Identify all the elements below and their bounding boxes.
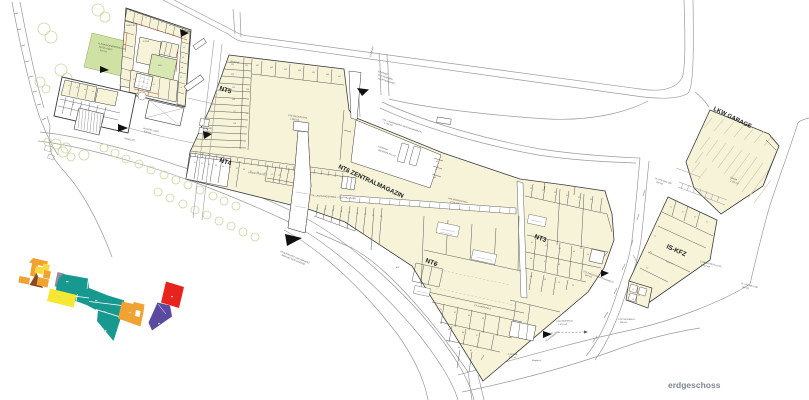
svg-text:r1: r1 <box>129 11 131 13</box>
svg-text:33: 33 <box>554 192 556 194</box>
svg-text:131: 131 <box>246 113 249 115</box>
svg-text:62: 62 <box>454 312 456 314</box>
svg-text:NT6: NT6 <box>435 264 438 266</box>
svg-text:001: 001 <box>256 65 259 67</box>
svg-text:965 m2: 965 m2 <box>620 322 628 324</box>
svg-text:004: 004 <box>298 70 301 72</box>
svg-text:127: 127 <box>233 111 236 113</box>
svg-text:61: 61 <box>440 309 442 311</box>
svg-text:t2: t2 <box>143 80 145 83</box>
svg-text:43: 43 <box>559 248 561 250</box>
svg-text:29: 29 <box>380 216 382 218</box>
svg-text:128: 128 <box>233 123 236 125</box>
svg-text:35: 35 <box>578 197 580 199</box>
svg-text:129: 129 <box>245 65 248 67</box>
svg-text:36: 36 <box>590 199 592 201</box>
svg-text:u3: u3 <box>84 89 86 91</box>
svg-text:32: 32 <box>542 190 544 192</box>
svg-text:64: 64 <box>482 318 484 320</box>
svg-text:125: 125 <box>232 87 235 89</box>
svg-text:28: 28 <box>372 215 374 217</box>
svg-text:65: 65 <box>448 329 450 331</box>
svg-text:06: 06 <box>229 167 231 169</box>
svg-text:44: 44 <box>573 251 575 253</box>
svg-text:42: 42 <box>545 245 547 247</box>
svg-text:12: 12 <box>271 174 273 176</box>
svg-text:t3: t3 <box>153 83 155 86</box>
svg-text:s2: s2 <box>183 47 185 49</box>
svg-text:03: 03 <box>208 164 210 166</box>
svg-text:1.474 m2: 1.474 m2 <box>558 324 568 326</box>
svg-text:34: 34 <box>566 195 568 197</box>
svg-text:r3: r3 <box>145 17 147 19</box>
svg-text:ST2 RBA: ST2 RBA <box>508 353 518 356</box>
svg-text:50: 50 <box>544 279 546 281</box>
svg-text:49: 49 <box>530 276 532 278</box>
svg-text:ST2 PROFIFELD: ST2 PROFIFELD <box>618 319 635 321</box>
svg-text:46: 46 <box>530 258 532 260</box>
svg-text:47: 47 <box>544 261 546 263</box>
svg-text:13: 13 <box>278 175 280 177</box>
svg-text:51: 51 <box>558 282 560 284</box>
svg-text:68: 68 <box>458 347 460 349</box>
svg-text:u7: u7 <box>80 106 82 108</box>
svg-text:s4: s4 <box>181 67 183 69</box>
svg-text:s6: s6 <box>180 87 182 89</box>
svg-text:LEGEND: LEGEND <box>203 128 212 130</box>
svg-text:25: 25 <box>348 212 350 214</box>
svg-text:007: 007 <box>338 76 341 78</box>
svg-text:67: 67 <box>476 335 478 337</box>
svg-text:21: 21 <box>316 208 318 210</box>
svg-text:005: 005 <box>312 72 315 74</box>
svg-text:003: 003 <box>284 69 287 71</box>
svg-text:905 m2: 905 m2 <box>509 357 517 359</box>
svg-text:FOYER: FOYER <box>143 41 150 43</box>
svg-text:u1: u1 <box>68 85 70 87</box>
svg-text:26: 26 <box>356 213 358 215</box>
svg-text:04: 04 <box>215 165 217 167</box>
svg-text:24: 24 <box>340 211 342 213</box>
svg-text:11: 11 <box>264 173 266 175</box>
svg-text:q2: q2 <box>435 169 437 171</box>
svg-text:u5: u5 <box>64 102 66 104</box>
svg-text:09: 09 <box>250 171 252 173</box>
svg-text:69: 69 <box>470 350 472 352</box>
svg-text:006: 006 <box>326 74 329 76</box>
svg-text:22: 22 <box>324 209 326 211</box>
svg-text:05: 05 <box>222 166 224 168</box>
svg-text:45: 45 <box>587 254 589 256</box>
svg-text:r5: r5 <box>161 22 163 24</box>
svg-text:r4: r4 <box>153 19 155 21</box>
svg-text:52: 52 <box>572 285 574 287</box>
svg-text:124: 124 <box>231 74 234 76</box>
svg-text:48: 48 <box>558 264 560 266</box>
svg-text:s1: s1 <box>184 37 186 39</box>
svg-text:Flugdach: Flugdach <box>532 360 542 362</box>
svg-text:66: 66 <box>462 332 464 334</box>
svg-text:01: 01 <box>194 162 196 164</box>
svg-text:41: 41 <box>531 242 533 244</box>
svg-text:erdgeschoss: erdgeschoss <box>668 380 721 390</box>
svg-text:q1: q1 <box>436 161 438 163</box>
svg-text:q3: q3 <box>434 177 436 179</box>
svg-text:r6: r6 <box>169 25 171 27</box>
svg-text:s5: s5 <box>180 77 182 79</box>
svg-text:u4: u4 <box>92 91 94 93</box>
svg-text:WERKSTATT: WERKSTATT <box>126 24 138 27</box>
svg-text:08: 08 <box>243 169 245 171</box>
svg-text:c2: c2 <box>638 295 640 297</box>
svg-text:02: 02 <box>201 163 203 165</box>
svg-text:r2: r2 <box>137 14 139 16</box>
svg-text:u2: u2 <box>76 87 78 89</box>
svg-text:c3: c3 <box>632 299 634 301</box>
svg-text:23: 23 <box>332 210 334 212</box>
svg-text:130: 130 <box>246 89 249 91</box>
svg-text:31: 31 <box>530 188 532 190</box>
svg-text:27: 27 <box>364 214 366 216</box>
svg-text:r7: r7 <box>177 27 179 29</box>
svg-text:c1: c1 <box>632 289 634 291</box>
svg-text:63: 63 <box>468 315 470 317</box>
svg-text:126: 126 <box>232 99 235 101</box>
svg-text:105 m2: 105 m2 <box>203 131 211 133</box>
svg-text:10: 10 <box>257 172 259 174</box>
svg-text:s3: s3 <box>182 57 184 59</box>
svg-text:002: 002 <box>270 67 273 69</box>
svg-text:07: 07 <box>236 168 238 170</box>
svg-text:123: 123 <box>231 64 234 66</box>
svg-text:u6: u6 <box>72 104 74 106</box>
svg-text:t1: t1 <box>133 78 135 81</box>
